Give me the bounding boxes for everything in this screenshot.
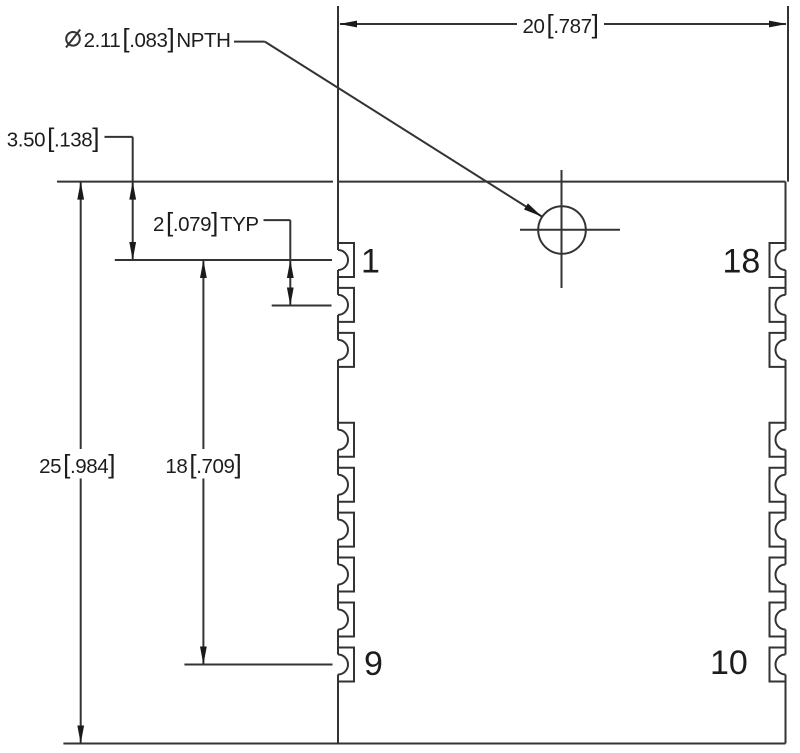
- svg-text:18: 18: [723, 243, 761, 281]
- svg-text:20[.787]: 20[.787]: [523, 9, 599, 39]
- svg-text:2[.079]TYP: 2[.079]TYP: [153, 207, 259, 237]
- svg-text:25[.984]: 25[.984]: [39, 449, 115, 479]
- svg-text:2.11[.083]NPTH: 2.11[.083]NPTH: [84, 23, 231, 53]
- svg-text:1: 1: [361, 243, 380, 281]
- svg-text:10: 10: [710, 644, 748, 682]
- svg-text:18[.709]: 18[.709]: [165, 449, 241, 479]
- svg-text:9: 9: [364, 645, 383, 683]
- svg-text:3.50[.138]: 3.50[.138]: [7, 123, 99, 153]
